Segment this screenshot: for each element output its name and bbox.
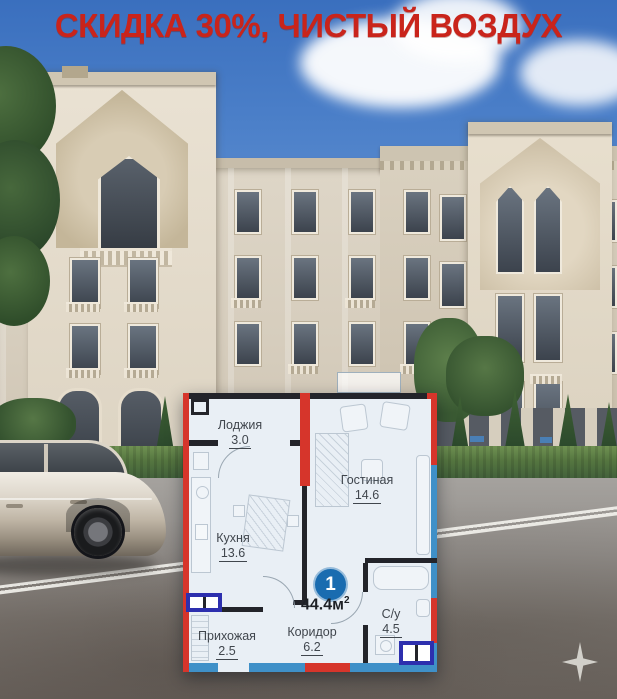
bathtub-outline [373, 566, 429, 590]
wall-top [183, 393, 437, 399]
storefront-sign [540, 437, 552, 443]
window-symbol [399, 641, 434, 665]
building-window [534, 186, 562, 274]
room-name: С/у [382, 607, 401, 621]
entrance-gap [218, 663, 249, 672]
room-name: Коридор [287, 625, 336, 639]
building-window [349, 256, 375, 300]
armchair-outline [339, 403, 368, 432]
wall-bottom-red [305, 663, 350, 672]
sofa-outline [416, 455, 430, 555]
building-window [235, 322, 261, 366]
balcony [124, 368, 158, 378]
building-window [292, 190, 318, 234]
window-mullion [415, 645, 418, 661]
tree [446, 336, 524, 416]
building-window [440, 262, 466, 308]
room-name: Кухня [216, 531, 249, 545]
plan-balcony-outline [337, 372, 401, 393]
building-window [440, 195, 466, 241]
total-area-sup: 2 [344, 595, 350, 606]
real-estate-ad: СКИДКА 30%, ЧИСТЫЙ ВОЗДУХ [0, 0, 617, 699]
car-wheel [74, 508, 122, 556]
wall-bottom-blue [189, 663, 218, 672]
building-window [235, 256, 261, 300]
washer-door-outline [380, 640, 392, 652]
room-area: 4.5 [380, 622, 401, 637]
balcony [124, 302, 158, 312]
building-window [292, 322, 318, 366]
storefront-sign [470, 436, 484, 442]
chair-outline [233, 505, 245, 517]
building-window [70, 258, 100, 308]
room-label-loggia: Лоджия 3.0 [200, 418, 280, 449]
wall-right-red [431, 598, 437, 643]
window-mullion [203, 597, 206, 608]
building-window [349, 322, 375, 366]
wall-bottom-blue [249, 663, 305, 672]
room-area: 6.2 [301, 640, 322, 655]
building-window [404, 256, 430, 300]
wall-hallway [220, 607, 263, 612]
building-window [128, 324, 158, 374]
window-symbol [186, 593, 222, 612]
building-window [349, 190, 375, 234]
balcony [66, 302, 100, 312]
balcony [66, 368, 100, 378]
balcony [345, 298, 375, 308]
room-area: 14.6 [353, 488, 381, 503]
total-area-value: 44.4м [301, 596, 344, 613]
room-label-corridor: Коридор 6.2 [272, 625, 352, 656]
loggia-cabinet-outline [193, 452, 209, 470]
car-door-handle [6, 504, 23, 508]
chair-outline [287, 515, 299, 527]
car [0, 436, 166, 582]
headline: СКИДКА 30%, ЧИСТЫЙ ВОЗДУХ [0, 7, 617, 45]
building-window [235, 190, 261, 234]
wall-right-red [431, 393, 437, 465]
building-window [292, 256, 318, 300]
room-name: Прихожая [198, 629, 256, 643]
room-label-hallway: Прихожая 2.5 [187, 629, 267, 660]
building-window [534, 294, 562, 362]
building-window [70, 324, 100, 374]
floor-plan: Лоджия 3.0 Гостиная 14.6 Кухня 13.6 Прих… [183, 372, 437, 672]
balcony [530, 374, 562, 384]
tower-cap [28, 72, 216, 85]
tower-finial [62, 66, 88, 78]
room-area: 3.0 [229, 433, 250, 448]
wall-bathroom-top [365, 558, 437, 563]
room-area: 13.6 [219, 546, 247, 561]
car-shadow [0, 554, 156, 576]
washing-machine-outline [375, 635, 395, 655]
door-arc [218, 446, 250, 478]
room-label-kitchen: Кухня 13.6 [193, 531, 273, 562]
total-area-label: 44.4м2 [301, 595, 381, 614]
tower-cap [468, 122, 612, 134]
wall-column [191, 399, 209, 415]
sink-outline [196, 486, 209, 499]
wall-center-red [300, 393, 310, 486]
room-name: Лоджия [218, 418, 262, 432]
armchair-outline [379, 401, 411, 431]
door-arc [263, 576, 295, 608]
wall-center-black [302, 486, 307, 605]
wall-right-blue [431, 465, 437, 598]
plan-floor: Лоджия 3.0 Гостиная 14.6 Кухня 13.6 Прих… [183, 393, 437, 672]
wall-bathroom-left [363, 563, 368, 592]
building-window [128, 258, 158, 308]
room-name: Гостиная [341, 473, 393, 487]
building-window [404, 190, 430, 234]
building-window [496, 186, 524, 274]
room-label-living: Гостиная 14.6 [327, 473, 407, 504]
room-area: 2.5 [216, 644, 237, 659]
balcony [231, 298, 261, 308]
